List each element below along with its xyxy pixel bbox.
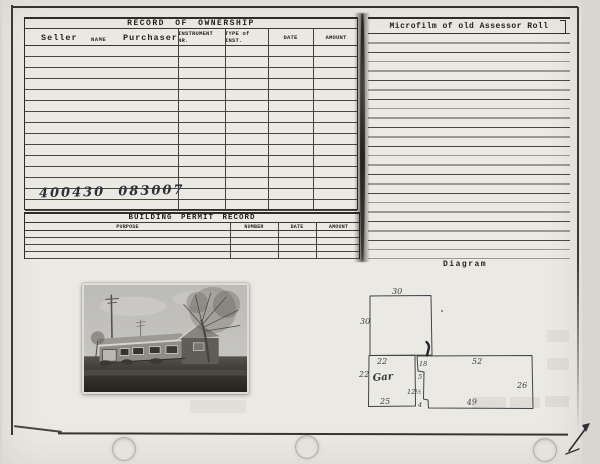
dim-garage-width: 22 <box>376 357 387 366</box>
diagram-title: Diagram <box>443 260 487 269</box>
permit-col-number: NUMBER <box>230 223 278 230</box>
binding-fold-line <box>360 14 365 260</box>
dim-garage-bottom: 25 <box>379 397 390 406</box>
microfilm-title: Microfilm of old Assessor Roll <box>389 22 548 31</box>
pen-stroke-mark <box>427 342 429 356</box>
column-divider <box>225 29 226 45</box>
ownership-blank-rows: 400430 083007 <box>25 46 357 211</box>
scanned-assessor-card: RECORD OF OWNERSHIP Seller NAME Purchase… <box>0 0 600 464</box>
permit-title: BUILDING PERMIT RECORD <box>25 213 359 223</box>
upper-addition-outline <box>370 296 432 356</box>
property-photo <box>82 283 249 394</box>
bleed-through-mark <box>547 358 569 370</box>
ownership-col-type: TYPE of INST. <box>225 29 268 45</box>
garage-label: Gar <box>372 371 394 384</box>
punch-hole <box>113 438 135 460</box>
punch-hole <box>296 436 318 458</box>
microfilm-section: Microfilm of old Assessor Roll <box>368 17 570 259</box>
ownership-header-row: Seller NAME Purchaser INSTRUMENT NR. TYP… <box>25 29 357 46</box>
dim-main-height: 26 <box>516 381 527 390</box>
permit-header-row: PURPOSE NUMBER DATE AMOUNT <box>25 223 359 231</box>
pen-arrow-mark <box>556 420 596 460</box>
column-divider <box>230 223 231 230</box>
column-divider <box>313 29 314 45</box>
dim-main-width: 52 <box>472 357 482 366</box>
column-divider <box>268 29 269 45</box>
dim-seg-5: 5 <box>418 373 422 381</box>
card-border-left <box>11 5 13 435</box>
ownership-col-amount: AMOUNT <box>313 29 359 45</box>
ownership-title: RECORD OF OWNERSHIP <box>25 18 357 29</box>
record-of-ownership-table: RECORD OF OWNERSHIP Seller NAME Purchase… <box>24 17 358 210</box>
handwritten-parcel-number: 400430 083007 <box>39 182 229 204</box>
dim-garage-height: 22 <box>358 370 369 379</box>
microfilm-title-band: Microfilm of old Assessor Roll <box>368 17 570 34</box>
bleed-through-mark <box>545 396 569 407</box>
dim-seg-18: 18 <box>419 360 427 368</box>
column-divider <box>278 223 279 230</box>
column-divider <box>316 231 317 259</box>
dim-upper-height: 30 <box>360 317 370 326</box>
ownership-col-instrument: INSTRUMENT NR. <box>178 29 225 45</box>
bleed-through-mark <box>547 330 569 342</box>
bleed-through-mark <box>190 400 246 413</box>
dim-upper-width: 30 <box>392 287 402 296</box>
permit-col-purpose: PURPOSE <box>25 223 230 230</box>
punch-hole <box>534 439 556 461</box>
card-background: RECORD OF OWNERSHIP Seller NAME Purchase… <box>2 0 582 464</box>
ownership-col-name: NAME <box>91 36 106 43</box>
column-divider <box>178 29 179 45</box>
permit-col-date: DATE <box>278 223 316 230</box>
card-border-corner <box>14 425 62 432</box>
column-divider <box>316 223 317 230</box>
house-photo-illustration <box>84 285 247 392</box>
bleed-through-mark <box>472 397 506 408</box>
bleed-through-mark <box>510 397 540 408</box>
column-divider <box>230 231 231 259</box>
pen-dot <box>441 310 443 312</box>
dim-seg-12half: 12½ <box>407 388 422 396</box>
ownership-col-purchaser: Purchaser <box>123 33 178 43</box>
column-divider <box>313 46 314 211</box>
card-border-right <box>577 7 579 431</box>
column-divider <box>268 46 269 211</box>
permit-blank-rows <box>25 231 359 259</box>
card-border-bottom <box>58 432 568 435</box>
ownership-col-seller: Seller <box>41 33 78 43</box>
column-divider <box>278 231 279 259</box>
ownership-col-date: DATE <box>268 29 313 45</box>
bracket-mark <box>560 20 566 34</box>
microfilm-blank-rules <box>368 34 570 259</box>
dim-seg-4: 4 <box>417 401 422 409</box>
card-border-top <box>12 6 578 8</box>
building-permit-table: BUILDING PERMIT RECORD PURPOSE NUMBER DA… <box>24 212 360 259</box>
